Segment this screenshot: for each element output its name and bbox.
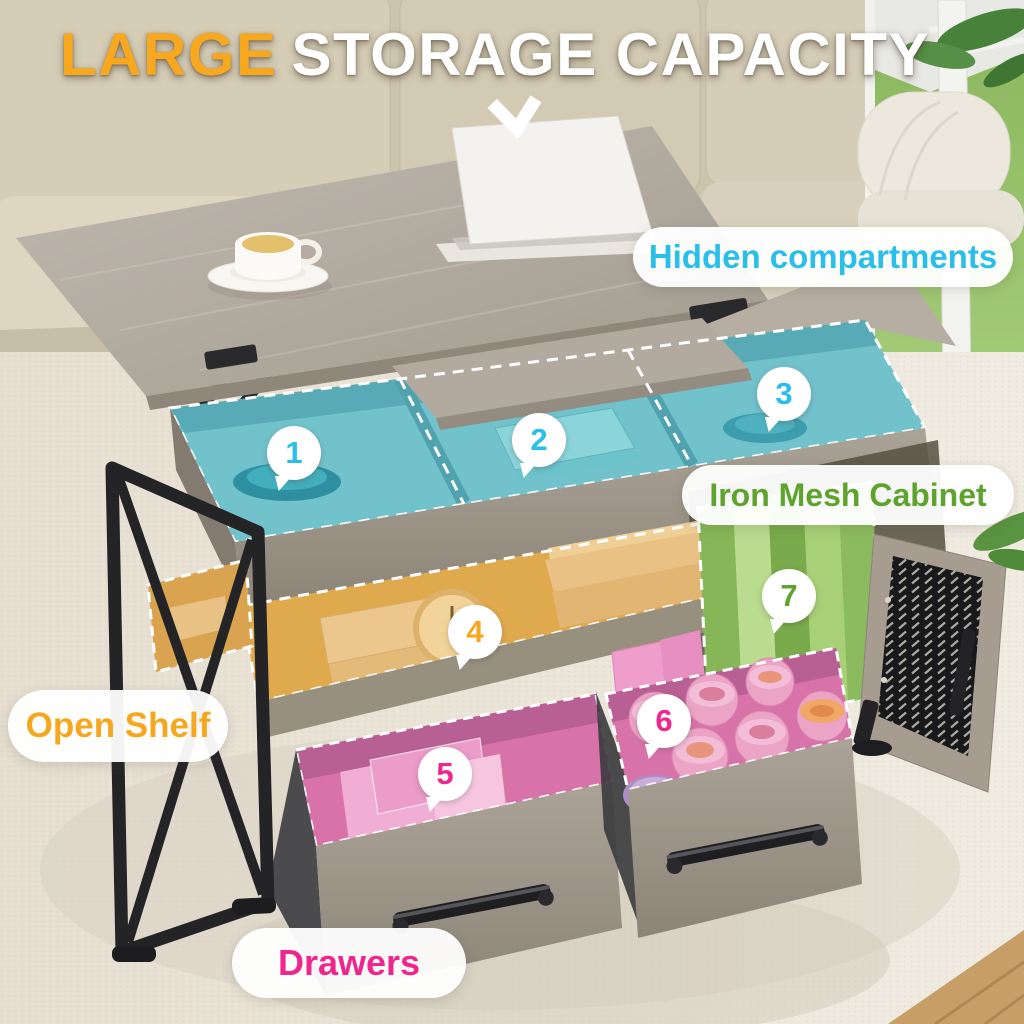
badge-3: 3 (757, 367, 811, 421)
label-hidden-compartments: Hidden compartments (633, 227, 1013, 287)
label-open-shelf: Open Shelf (8, 690, 228, 762)
badge-5: 5 (418, 747, 472, 801)
badge-6: 6 (637, 694, 691, 748)
headline: LARGESTORAGE CAPACITY (60, 20, 1020, 89)
drawer-right (606, 630, 862, 938)
chevron-down-icon (486, 93, 547, 146)
badge-7: 7 (762, 569, 816, 623)
badge-2: 2 (512, 413, 566, 467)
badge-4: 4 (448, 605, 502, 659)
label-iron-mesh-cabinet: Iron Mesh Cabinet (682, 465, 1014, 525)
product-infographic: LARGESTORAGE CAPACITY Hidden compartment… (0, 0, 1024, 1024)
armchair (858, 92, 1024, 248)
badge-1: 1 (267, 426, 321, 480)
headline-rest: STORAGE CAPACITY (292, 21, 931, 88)
headline-highlight: LARGE (60, 21, 278, 88)
label-drawers: Drawers (232, 928, 466, 998)
